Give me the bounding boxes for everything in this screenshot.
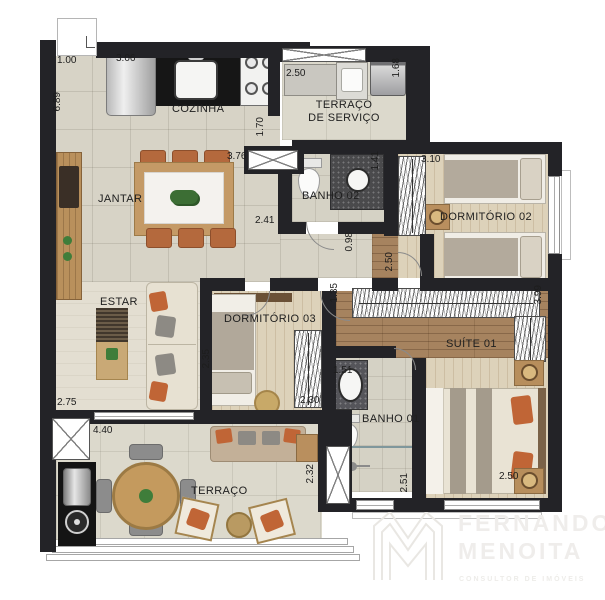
dim-service-depth: 1.68 — [392, 58, 402, 77]
bed-sheet-fold — [424, 388, 444, 494]
dim-hall-depth: 2.50 — [385, 252, 395, 271]
sofa-pillow-orange — [215, 428, 233, 444]
wall-mid-band-b — [270, 278, 318, 291]
wall-bath02-bedroom02-divider — [384, 152, 398, 236]
dim-banho02-width: 1.41 — [371, 151, 381, 170]
dim-left-height: 6.89 — [53, 92, 63, 111]
floor-plan: COZINHA TERRAÇO DE SERVIÇO JANTAR BANHO … — [0, 0, 605, 600]
wall-mid-band-c — [372, 278, 398, 291]
green-cushion — [106, 348, 118, 360]
dim-jantar-width: 3.76 — [227, 152, 246, 162]
dim-jantar-depth: 2.41 — [255, 216, 274, 226]
dim-suite-width: 3.99 — [534, 285, 544, 304]
sideboard-plant — [63, 236, 72, 245]
bed-pillow — [208, 372, 252, 394]
table-plant — [139, 489, 153, 503]
sideboard-plant — [63, 252, 72, 261]
room-label-jantar: JANTAR — [98, 193, 142, 206]
bar-cart — [296, 434, 318, 462]
dim-terraco-depth: 2.32 — [306, 464, 316, 483]
room-label-estar: ESTAR — [100, 296, 138, 309]
room-label-cozinha: COZINHA — [172, 103, 224, 116]
barbecue-grill — [63, 468, 91, 506]
dim-entry: 1.00 — [57, 56, 76, 66]
dim-dorm03-depth: 2.30 — [300, 396, 319, 406]
side-table — [226, 512, 252, 538]
shower-arm — [356, 465, 370, 467]
dim-terraco-width: 4.40 — [93, 426, 112, 436]
room-label-banho02: BANHO 02 — [302, 190, 360, 203]
dining-chair — [178, 228, 204, 248]
wardrobe-rail — [308, 333, 309, 404]
wall-bath01-suite-divider — [412, 358, 426, 498]
watermark-name-line2: MENOITA — [458, 540, 583, 563]
kitchen-sink — [174, 60, 218, 100]
wardrobe-rail — [359, 303, 534, 304]
sofa-pillow-orange — [148, 291, 168, 313]
duct-shaft-bath02 — [248, 150, 298, 170]
bed-blanket — [444, 160, 518, 198]
service-window — [282, 48, 366, 62]
bed-pillow — [520, 158, 542, 200]
watermark: FERNANDO MENOITA CONSULTOR DE IMÓVEIS — [362, 500, 602, 595]
dim-banho01-depth: 2.51 — [400, 473, 410, 492]
room-label-terraco-servico-line2: DE SERVIÇO — [303, 112, 385, 125]
dining-chair — [210, 228, 236, 248]
dim-dorm03-width: 2.35 — [202, 349, 212, 368]
wall-bath01-top — [330, 346, 396, 358]
watermark-tagline: CONSULTOR DE IMÓVEIS — [459, 576, 585, 583]
bedroom02-window — [548, 176, 560, 254]
dim-service-window: 2.50 — [286, 69, 305, 79]
bed-runner-gray — [476, 388, 492, 494]
table-lamp — [521, 472, 538, 489]
wall-left — [40, 40, 56, 552]
dining-chair — [146, 228, 172, 248]
dim-estar-width: 2.75 — [57, 398, 76, 408]
bath01-window — [356, 500, 394, 510]
room-label-terraco: TERRAÇO — [191, 485, 248, 498]
cooktop-burner — [245, 82, 258, 95]
dim-dorm02-width: 3.10 — [421, 155, 440, 165]
wall-bedroom02-top — [406, 142, 562, 154]
table-centerpiece-plant — [170, 190, 198, 204]
room-label-banho01: BANHO 01 — [362, 413, 420, 426]
watermark-logo-m-icon — [366, 504, 450, 588]
sofa-pillow-gray — [155, 353, 177, 376]
dim-suite-depth: 2.50 — [499, 472, 518, 482]
sofa-pillow-gray — [262, 431, 280, 445]
wardrobe-rail — [530, 318, 531, 359]
wall-right-upper — [548, 154, 562, 176]
wardrobe-suite-right — [514, 316, 546, 362]
dim-kitchen-run: 3.06 — [116, 54, 135, 64]
dim-kitchen-pass: 1.70 — [256, 117, 266, 136]
balcony-railing — [46, 554, 360, 561]
wardrobe-rail — [412, 159, 413, 232]
wall-service-right — [406, 46, 430, 154]
sideboard-decor — [59, 166, 79, 208]
wall-vestibule-stub — [420, 234, 434, 278]
bed-pillow — [520, 236, 542, 278]
room-label-dormitorio02: DORMITÓRIO 02 — [440, 211, 532, 224]
tv-screen — [96, 308, 128, 342]
sofa-pillow-orange — [148, 381, 168, 403]
sofa-divider — [148, 344, 196, 345]
bed-pillow-orange — [510, 395, 533, 425]
sofa-pillow-gray — [155, 315, 177, 338]
room-label-terraco-servico-line1: TERRAÇO — [303, 99, 385, 112]
sofa-pillow-gray — [238, 431, 256, 445]
laundry-sink-basin — [341, 68, 363, 92]
bed-runner-gray — [450, 388, 466, 494]
elevator-shaft — [52, 418, 90, 460]
duct-shaft-bath01 — [326, 446, 350, 504]
watermark-name-line1: FERNANDO — [458, 512, 605, 535]
wall-kitchen-service-divider — [268, 58, 280, 116]
suite-window — [444, 500, 540, 510]
wall-bath02-bottom-a — [278, 222, 306, 234]
terrace-chair — [129, 444, 163, 460]
entry-door-mark — [86, 36, 95, 48]
room-label-suite01: SUÍTE 01 — [446, 338, 497, 351]
wardrobe-suite-top — [352, 288, 540, 318]
dim-banho01-width: 1.51 — [333, 366, 352, 376]
terrace-chair — [96, 479, 112, 513]
vanity-sink — [346, 168, 370, 192]
dim-hall-width: 0.98 — [345, 232, 355, 251]
wall-right — [548, 254, 562, 504]
balcony-railing — [52, 546, 354, 553]
wall-mid-band-a — [200, 278, 245, 291]
terrace-sink-tap — [74, 519, 80, 525]
dim-suite-entry: 1.35 — [330, 283, 340, 302]
bed-blanket — [444, 238, 518, 276]
table-lamp — [521, 364, 538, 381]
living-terrace-door — [94, 412, 194, 420]
room-label-dormitorio03: DORMITÓRIO 03 — [224, 313, 316, 326]
wardrobe-bedroom02 — [398, 156, 426, 236]
bedroom02-window-sill — [561, 170, 571, 260]
